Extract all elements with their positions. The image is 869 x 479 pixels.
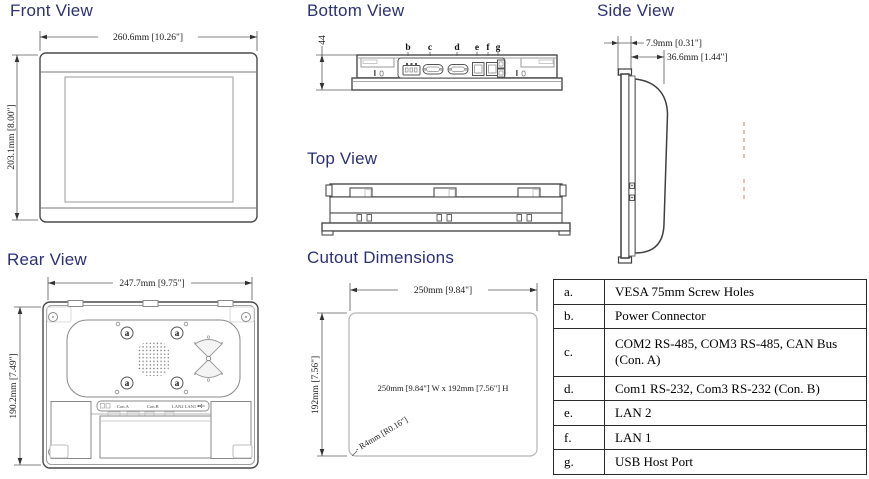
bottom-height-dimension: 44 [318,35,328,45]
cutout-width-dimension: 250mm [9.84"] [414,286,472,296]
table-row: a. VESA 75mm Screw Holes [554,280,867,305]
side-bezel-dimension: 7.9mm [0.31"] [646,39,702,49]
label-f: f [486,43,490,53]
legend-desc: COM2 RS-485, COM3 RS-485, CAN Bus (Con. … [605,329,867,377]
label-g: g [496,43,501,53]
strip-lan: LAN2 LAN1 [172,404,196,409]
label-d: d [454,43,460,53]
legend-desc: Com1 RS-232, Com3 RS-232 (Con. B) [605,376,867,401]
side-view-drawing: 7.9mm [0.31"] 36.6mm [1.44"] [598,24,868,269]
side-profile-outline [619,69,668,263]
top-view-drawing [300,170,590,240]
legend-key: c. [554,329,605,377]
bottom-view-title: Bottom View [307,1,404,21]
table-row: f. LAN 1 [554,425,867,450]
vesa-hole-label: a [125,328,130,338]
legend-key: e. [554,401,605,426]
side-view-title: Side View [597,1,674,21]
table-row: b. Power Connector [554,304,867,329]
legend-desc: Power Connector [605,304,867,329]
lan2-port-icon [473,63,485,76]
table-row: d. Com1 RS-232, Com3 RS-232 (Con. B) [554,376,867,401]
rear-width-dimension: 247.7mm [9.75"] [119,279,184,289]
table-row: e. LAN 2 [554,401,867,426]
front-screen-area [65,77,233,202]
usb-ports-icon [498,60,505,77]
legend-key: d. [554,376,605,401]
label-e: e [475,43,479,53]
mechanical-drawing-page: Front View Bottom View Side View Top Vie… [0,0,869,479]
side-depth-dimension: 36.6mm [1.44"] [667,53,728,63]
port-legend-table: a. VESA 75mm Screw Holes b. Power Connec… [553,279,867,475]
cutout-drawing: 250mm [9.84"] 192mm [7.56"] 250mm [9.84"… [300,265,560,477]
speaker-vent-dots [138,342,169,376]
legend-desc: VESA 75mm Screw Holes [605,280,867,305]
strip-con-a: Con.A [117,404,130,409]
table-row: c. COM2 RS-485, COM3 RS-485, CAN Bus (Co… [554,329,867,377]
strip-con-b: Con.B [147,404,159,409]
top-device-body [322,184,570,235]
label-b: b [405,43,410,53]
db9-connector-d-icon [448,65,468,75]
legend-desc: LAN 2 [605,401,867,426]
legend-key: g. [554,450,605,475]
legend-desc: LAN 1 [605,425,867,450]
rear-height-dimension: 190.2mm [7.49"] [9,353,19,418]
rear-label-strip: Con.A Con.B LAN2 LAN1 [97,401,209,411]
legend-key: a. [554,280,605,305]
legend-key: b. [554,304,605,329]
vesa-hole-label: a [175,378,180,388]
front-panel-outline [40,53,257,222]
front-width-dimension: 260.6mm [10.26"] [113,33,183,43]
vesa-hole-label: a [175,328,180,338]
front-view-drawing: 260.6mm [10.26"] 203.1mm [8.00"] [8,24,288,230]
legend-key: f. [554,425,605,450]
bottom-view-drawing: 44 [300,24,585,104]
db9-connector-c-icon [423,65,443,75]
front-view-title: Front View [10,1,93,21]
label-c: c [428,43,432,53]
cutout-height-dimension: 192mm [7.56"] [311,356,321,414]
table-row: g. USB Host Port [554,450,867,475]
bottom-port-labels: b c d e f g [405,43,500,56]
vesa-hole-label: a [125,378,130,388]
front-height-dimension: 203.1mm [8.00"] [7,104,17,169]
lan1-port-icon [487,63,499,76]
top-view-title: Top View [307,149,377,169]
legend-desc: USB Host Port [605,450,867,475]
rear-view-drawing: 247.7mm [9.75"] 190.2mm [7.49"] [5,270,295,479]
cutout-size-note: 250mm [9.84"] W x 192mm [7.56"] H [378,383,509,393]
rear-view-title: Rear View [7,250,87,270]
side-front-bezel [621,74,629,258]
